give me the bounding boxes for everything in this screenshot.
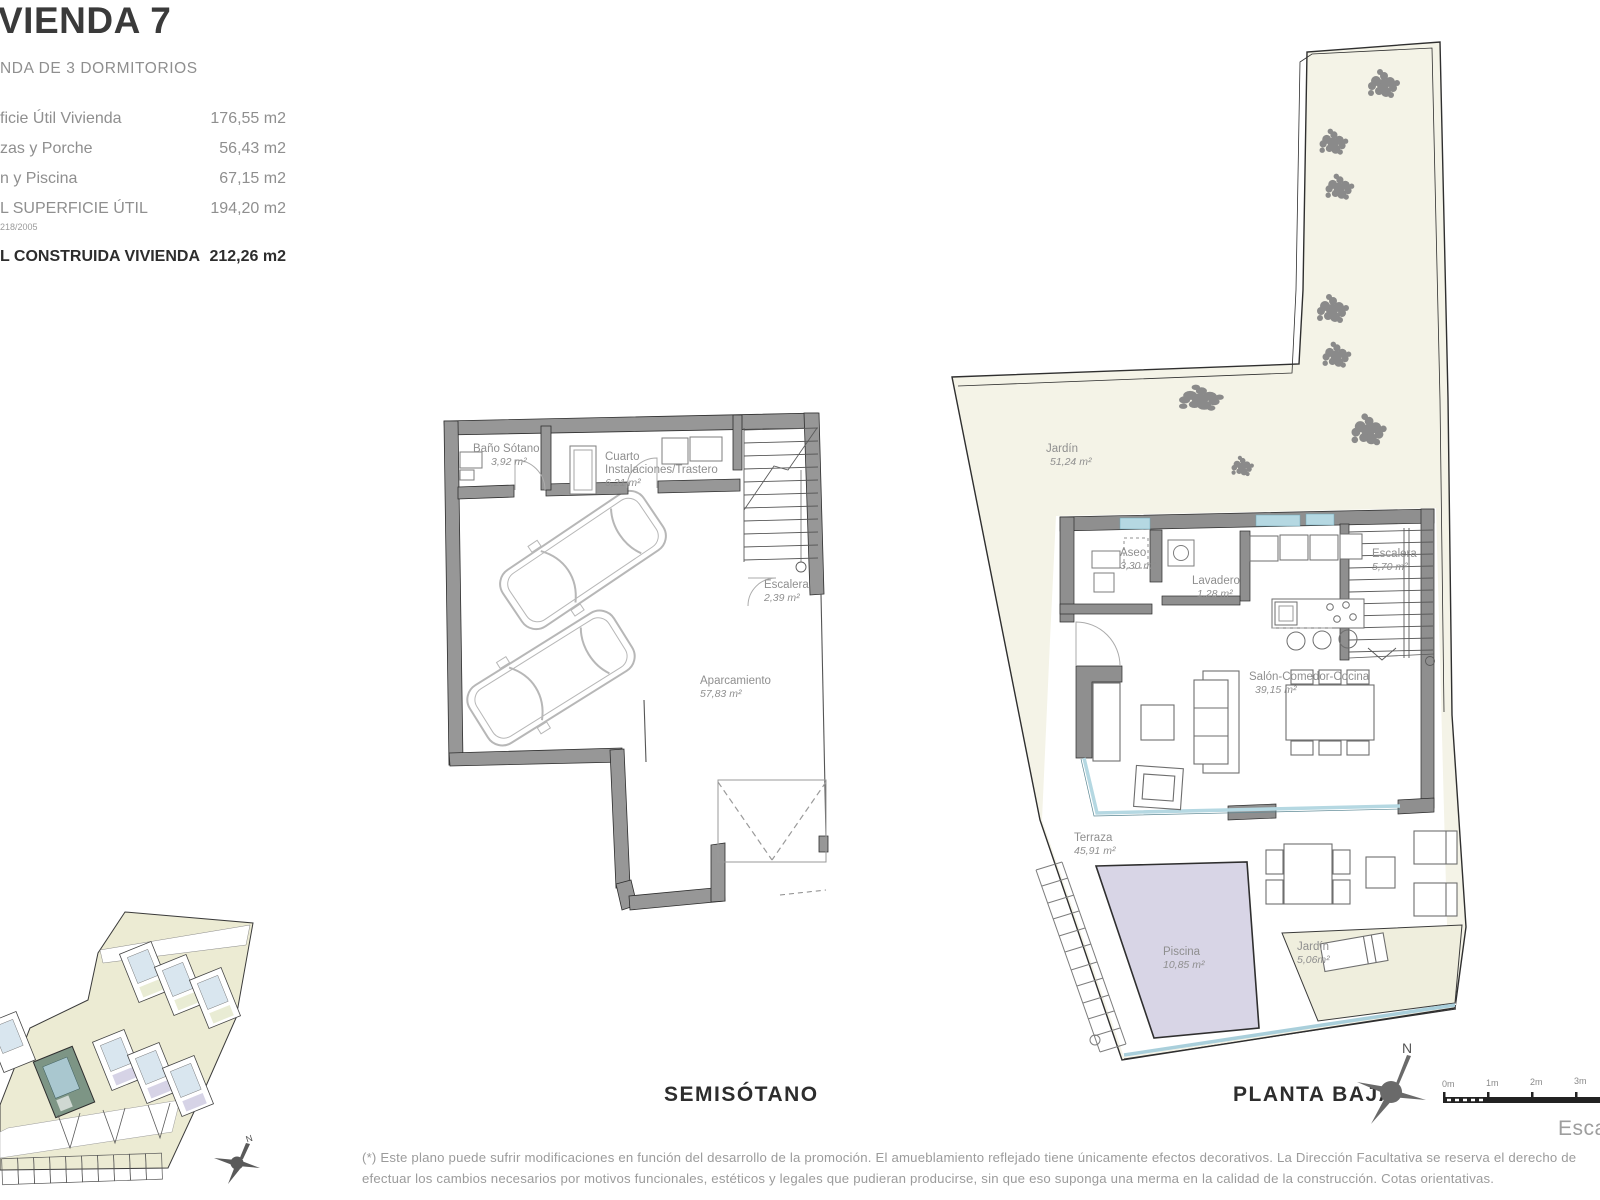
surface-row-label: ficie Útil Vivienda xyxy=(0,110,122,128)
room-label-terraza: Terraza 45,91 m² xyxy=(1074,832,1115,858)
page-subtitle: NDA DE 3 DORMITORIOS xyxy=(0,60,198,78)
room-label-aparcamiento: Aparcamiento 57,83 m² xyxy=(700,675,771,701)
surface-row-label: L SUPERFICIE ÚTIL xyxy=(0,200,148,218)
footnote-line1: (*) Este plano puede sufrir modificacion… xyxy=(362,1150,1576,1165)
surface-row-value: 67,15 m2 xyxy=(198,170,286,188)
site-plan-minimap: N xyxy=(0,893,270,1200)
caption-semisotano: SEMISÓTANO xyxy=(664,1083,819,1107)
surface-row-value: 176,55 m2 xyxy=(198,110,286,128)
surface-row-label: n y Piscina xyxy=(0,170,77,188)
surface-row-value: 56,43 m2 xyxy=(198,140,286,158)
room-label-cuarto: Cuarto Instalaciones/Trastero 6,21 m² xyxy=(605,451,718,490)
footnote-line2: efectuar los cambios necesarios por moti… xyxy=(362,1171,1494,1186)
surface-total-value: 212,26 m2 xyxy=(198,248,286,266)
scale-tick-label: 2m xyxy=(1530,1077,1543,1087)
surface-row-value: 194,20 m2 xyxy=(198,200,286,218)
scale-tick-label: 0m xyxy=(1442,1079,1455,1089)
surface-table-note: 218/2005 xyxy=(0,222,38,232)
minimap-compass-icon: N xyxy=(214,1133,260,1184)
room-label-aseo: Aseo 3,30 m² xyxy=(1120,547,1156,573)
semisotano-thin-lines xyxy=(644,594,826,838)
scale-caption: Escala xyxy=(1558,1117,1600,1141)
scale-tick-label: 3m xyxy=(1574,1076,1587,1086)
page-title: VIENDA 7 xyxy=(0,0,171,42)
garage-door xyxy=(718,780,826,895)
room-label-escalera-pb: Escalera 5,70 m² xyxy=(1372,548,1417,574)
room-label-lavadero: Lavadero 1,28 m² xyxy=(1192,575,1240,601)
north-label: N xyxy=(1402,1040,1412,1056)
room-label-bano: Baño Sótano 3,92 m² xyxy=(473,443,540,469)
room-label-jardin2: Jardín 5,06m² xyxy=(1297,941,1330,967)
room-label-jardin: Jardín 51,24 m² xyxy=(1046,443,1091,469)
floorplan-page: VIENDA 7 NDA DE 3 DORMITORIOS ficie Útil… xyxy=(0,0,1600,1200)
surface-row-label: zas y Porche xyxy=(0,140,92,158)
scale-tick-label: 1m xyxy=(1486,1078,1499,1088)
minimap-north-label: N xyxy=(245,1133,254,1145)
scale-bar: 0m 1m 2m 3m xyxy=(1436,1064,1600,1114)
room-label-piscina: Piscina 10,85 m² xyxy=(1163,946,1204,972)
room-label-escalera-ss: Escalera 2,39 m² xyxy=(764,579,809,605)
room-label-salon: Salón-Comedor-Cocina 39,15 m² xyxy=(1249,671,1369,697)
surface-total-label: L CONSTRUIDA VIVIENDA xyxy=(0,248,200,266)
